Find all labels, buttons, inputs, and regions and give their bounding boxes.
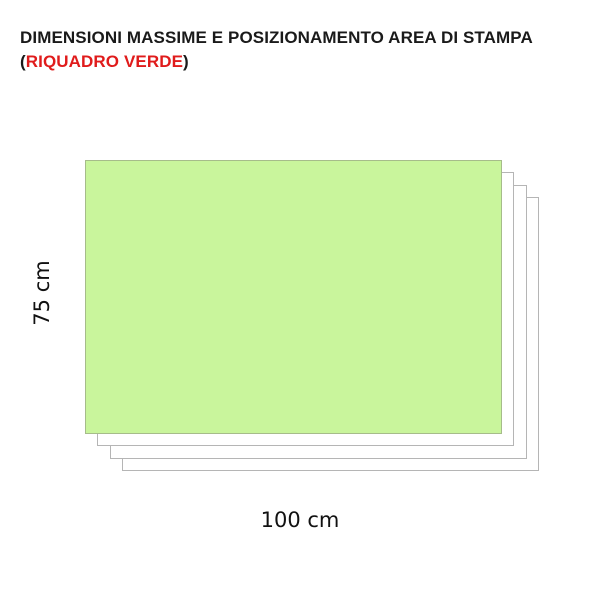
- diagram-canvas: DIMENSIONI MASSIME E POSIZIONAMENTO AREA…: [0, 0, 600, 600]
- width-dimension-label: 100 cm: [261, 508, 340, 532]
- title-highlight-red: RIQUADRO VERDE: [26, 52, 183, 71]
- height-dimension-label: 75 cm: [30, 260, 54, 325]
- print-area-green-box: [85, 160, 502, 434]
- title-line1: DIMENSIONI MASSIME E POSIZIONAMENTO AREA…: [20, 26, 533, 50]
- title-line2: (RIQUADRO VERDE): [20, 50, 533, 74]
- title-paren-close: ): [183, 52, 189, 71]
- page-title: DIMENSIONI MASSIME E POSIZIONAMENTO AREA…: [20, 26, 533, 74]
